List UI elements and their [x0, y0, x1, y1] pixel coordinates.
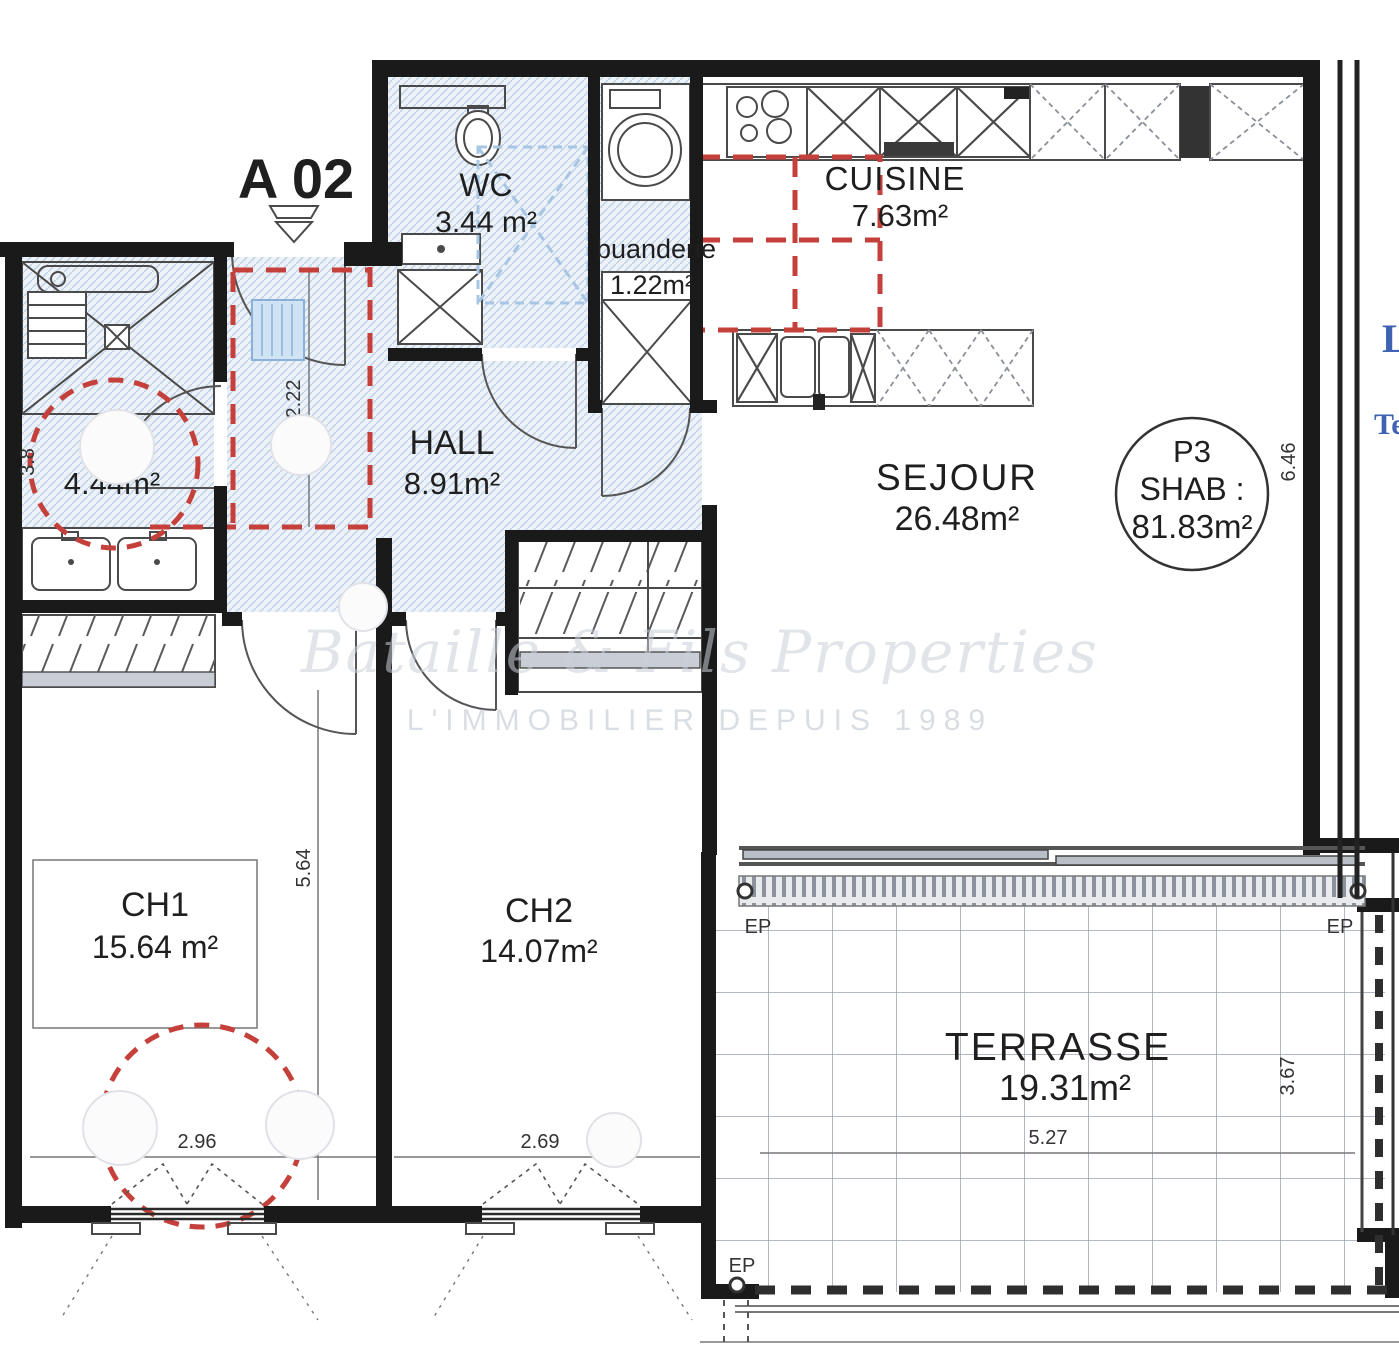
dim-ch2-width: 2.69	[521, 1131, 560, 1153]
dim-hall-depth: 2.22	[283, 380, 305, 419]
lot-shab-label: SHAB :	[1140, 471, 1245, 507]
ch1-wardrobe	[22, 615, 215, 687]
dim-ch1-width: 2.96	[178, 1131, 217, 1153]
dim-terrasse-width: 5.27	[1029, 1127, 1068, 1149]
buanderie-area: 1.22m²	[610, 270, 694, 300]
dim-terrasse-depth: 3.67	[1277, 1057, 1299, 1096]
cuisine-area: 7.63m²	[852, 198, 948, 233]
terrasse-area: 19.31m²	[999, 1067, 1131, 1108]
hall-area: 8.91m²	[404, 466, 500, 501]
lot-shab-area: 81.83m²	[1131, 508, 1252, 545]
terrasse-name: TERRASSE	[945, 1026, 1171, 1069]
ch1-area: 15.64 m²	[92, 929, 219, 965]
floor-plan-page: Bataille & Fils Properties L'IMMOBILIER …	[0, 0, 1399, 1350]
hall-name: HALL	[409, 424, 494, 462]
dim-sde-width: 3.8	[17, 448, 39, 476]
rainwater-pipe-bottom	[730, 1278, 744, 1292]
ep-label-right: EP	[1327, 916, 1354, 938]
ch2-area: 14.07m²	[480, 933, 598, 969]
sejour-name: SEJOUR	[876, 457, 1038, 498]
watermark: Bataille & Fils Properties L'IMMOBILIER …	[300, 618, 1099, 737]
ch1-name: CH1	[121, 886, 189, 924]
lot-summary-circle: P3 SHAB : 81.83m²	[1116, 418, 1268, 570]
wc-area: 3.44 m²	[435, 206, 537, 239]
entrance-doormat	[252, 300, 304, 360]
floor-plan-drawing: Bataille & Fils Properties L'IMMOBILIER …	[0, 0, 1399, 1350]
buanderie-name: buanderie	[596, 234, 716, 264]
edge-letter-top: L	[1382, 316, 1399, 361]
sejour-area: 26.48m²	[895, 500, 1020, 538]
dim-ch1-depth: 5.64	[293, 849, 315, 888]
watermark-caption: L'IMMOBILIER DEPUIS 1989	[407, 704, 993, 737]
cuisine-name: CUISINE	[825, 160, 966, 197]
ep-label-left: EP	[745, 916, 772, 938]
edge-letter-bottom: Te	[1374, 408, 1399, 441]
watermark-script: Bataille & Fils Properties	[300, 618, 1099, 686]
ch2-name: CH2	[505, 892, 573, 930]
drain-grate	[738, 876, 1365, 906]
wc-name: WC	[459, 167, 512, 203]
lot-code: P3	[1173, 434, 1211, 469]
unit-label: A 02	[238, 147, 354, 210]
dim-sejour-depth: 6.46	[1278, 443, 1300, 482]
rainwater-pipe-left	[738, 884, 752, 898]
ep-label-bottom: EP	[729, 1255, 756, 1277]
